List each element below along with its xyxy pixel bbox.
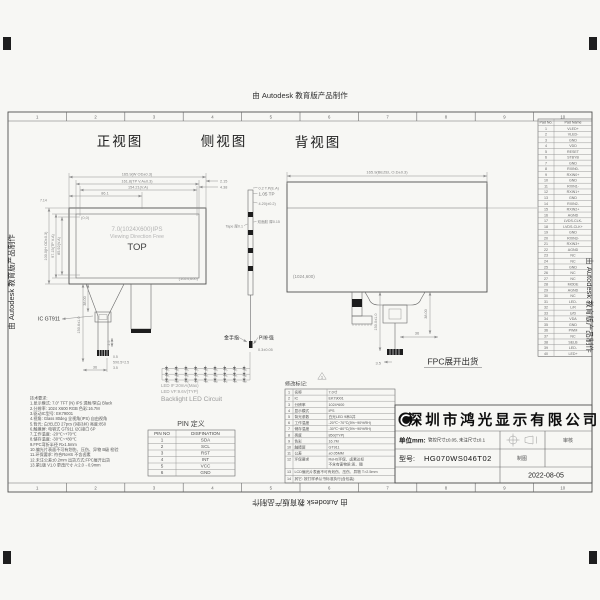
pad-name: RXIN1- — [567, 184, 580, 188]
pin-number: 3 — [161, 451, 164, 456]
spec-item: 名称 — [295, 390, 303, 395]
ruler-number: 7 — [386, 486, 389, 491]
note-line: 1.显示模式: 7.0" TFT (N) IPS 透射/常白 Black — [30, 400, 113, 406]
front-view-drawing — [45, 173, 218, 372]
pad-name: LED+ — [568, 352, 577, 356]
front-dim-va-height: 85.92(V.A) — [57, 236, 61, 255]
pin-number: 5 — [161, 464, 164, 469]
spec-row-number: 4 — [288, 409, 290, 413]
ruler-number: 3 — [153, 486, 156, 491]
ruler-number: 2 — [94, 114, 97, 119]
spec-item: 分辨率 — [295, 402, 306, 407]
led-vf-spec: LED VF:9.6V(TYP) — [161, 389, 199, 394]
pad-number: 17 — [544, 219, 548, 223]
pin-name: RST — [201, 451, 210, 456]
spec-row-number: 13 — [287, 470, 291, 474]
pad-number: 34 — [544, 317, 548, 321]
pad-name: VDD — [569, 144, 577, 148]
spec-item: IC — [295, 397, 299, 401]
pin-name: SCL — [201, 444, 210, 449]
spec-row-number: 8 — [288, 433, 290, 437]
side-tape-label: Tape 厚0.1 — [226, 224, 243, 229]
autodesk-watermark-left: 由 Autodesk 教育版产品制作 — [6, 234, 16, 330]
pad-number: 8 — [545, 167, 547, 171]
pad-table-header: Pad Name — [565, 121, 582, 125]
spec-value: 白光LED 9串3并 — [329, 414, 356, 419]
ruler-number: 5 — [270, 486, 273, 491]
note-line: 13.第1版 V1.0 更改尺寸 A:2.0→0.9mm — [30, 461, 101, 467]
pad-name: RXIN0+ — [567, 173, 580, 177]
pad-name: GND — [569, 138, 577, 142]
pad-number: 1 — [545, 127, 547, 131]
pad-name: VDA — [569, 317, 577, 321]
back-dim-fpc-length: 150.0±1.0 — [374, 314, 378, 331]
front-top-label: TOP — [127, 242, 146, 253]
pad-name: AGND — [568, 213, 579, 217]
front-dim-va-width: 154.21(V.A) — [128, 186, 149, 190]
spec-row-number: 2 — [288, 397, 290, 401]
note-line: 7.工作温度: -20℃~+70℃ — [30, 431, 77, 437]
note-line: 9.FPC弯折半径 R≥1.5mm — [30, 441, 77, 447]
pad-number: 3 — [545, 138, 547, 142]
note-line: 2.分辨率: 1024 X600 RGB 色彩:16.7M — [30, 405, 100, 411]
pad-number: 19 — [544, 231, 548, 235]
pad-number: 33 — [544, 311, 548, 315]
pad-number: 31 — [544, 300, 548, 304]
note-line: 5.背光: 白光LED 27pcs (9串3并) 亮度:850 — [30, 420, 107, 426]
ruler-number: 10 — [560, 486, 565, 491]
back-dim-fpc-width: 38.00 — [424, 309, 428, 319]
pad-name: NC — [570, 259, 576, 263]
pin-definition-table: PIN NODISFINATION1SDA2SCL3RST4INT5VCC6GN… — [148, 430, 235, 476]
spec-value: 850(TYP) — [329, 433, 345, 437]
front-dim-0-5: 0.5 — [113, 355, 118, 359]
front-dim-pitch: 5X0.5=2.5 — [113, 361, 129, 365]
spec-row-number: 14 — [287, 477, 291, 481]
pad-number: 28 — [544, 283, 548, 287]
pad-name: RXIN0- — [567, 167, 580, 171]
company-name: 深圳市鸿光显示有限公司 — [408, 411, 600, 429]
pin-name: INT — [202, 457, 210, 462]
pad-number: 6 — [545, 156, 547, 160]
side-dim-tp: 0.2 T.P(E.A) — [259, 187, 280, 191]
note-line: 4.视角: Glass 80deg 全视角(IPS) 自由视角 — [30, 415, 107, 421]
pad-number: 2 — [545, 133, 547, 137]
pad-table-header: Pad No. — [540, 121, 553, 125]
back-corner-coord: (1024,600) — [293, 274, 315, 279]
pad-number: 26 — [544, 271, 548, 275]
spec-row-number: 5 — [288, 415, 290, 419]
pad-name: GND — [569, 323, 577, 327]
pad-number: 27 — [544, 277, 548, 281]
spec-item: 背光参数 — [295, 414, 310, 419]
pad-number: 16 — [544, 213, 548, 217]
pad-name: RXIN2+ — [567, 208, 580, 212]
back-dim-od: 165.9(BEZEL O.D±0.3) — [366, 170, 408, 175]
side-view-drawing — [239, 188, 258, 349]
pad-number: 12 — [544, 190, 548, 194]
front-viewing-direction-label: Viewing Direction Free — [110, 234, 164, 240]
pad-name: RXIN2- — [567, 202, 580, 206]
pad-name: GND — [569, 179, 577, 183]
side-adhesive-label: 双面胶 厚0.15 — [258, 219, 280, 224]
pad-name: NC — [570, 277, 576, 281]
ruler-number: 8 — [445, 114, 448, 119]
side-view-title: 侧视图 — [201, 134, 248, 149]
pad-name: MODE — [568, 283, 579, 287]
back-dim-36: 36 — [415, 331, 420, 336]
pad-name: U/D — [570, 311, 577, 315]
spec-row-number: 1 — [288, 391, 290, 395]
pad-name: RXIN3- — [567, 236, 580, 240]
note-line: 技术要求: — [30, 395, 48, 401]
revision-number: 1 — [321, 376, 323, 380]
pad-number: 18 — [544, 225, 548, 229]
front-dim-2-5: 2.5 — [107, 341, 111, 346]
pad-number: 39 — [544, 346, 548, 350]
pad-name: LED- — [569, 300, 578, 304]
pin-number: 1 — [161, 438, 164, 443]
note-line: 3.驱动IC型号: EK79001 — [30, 410, 74, 416]
pin-table-header: PIN NO — [154, 431, 170, 436]
pad-name: LED- — [569, 346, 578, 350]
back-view-title: 背视图 — [295, 135, 342, 150]
spec-row-number: 7 — [288, 427, 290, 431]
pad-name: GND — [569, 196, 577, 200]
spec-value: RoHS环保、卤素达标 — [329, 457, 365, 462]
side-dim-total: 4.20(±0.2) — [259, 202, 277, 206]
front-dim-tp-va-width: 161.8(TP V.A±0.3) — [121, 180, 153, 184]
fpc-ship-note: FPC展开出货 — [427, 357, 479, 367]
spec-value: EK79001 — [329, 397, 344, 401]
pin-number: 2 — [161, 444, 164, 449]
ruler-number: 1 — [36, 114, 39, 119]
note-line: 10.偏光片表面不可有划伤、压伤、异物 B级 检验 — [30, 446, 118, 452]
pad-name: VLED+ — [567, 127, 579, 131]
ruler-number: 4 — [211, 114, 214, 119]
revision-mark-label: 修改标记: — [285, 380, 307, 388]
pad-number: 9 — [545, 173, 547, 177]
front-panel-size-label: 7.0(1024X600)IPS — [112, 226, 163, 233]
autodesk-watermark-top: 由 Autodesk 教育版产品制作 — [252, 90, 348, 100]
front-origin-coord: (0,0) — [81, 215, 90, 220]
note-line: 8.储存温度: -30℃~+80℃ — [30, 436, 77, 442]
pad-name: GND — [569, 265, 577, 269]
pad-number: 11 — [544, 184, 548, 188]
registration-mark — [589, 551, 597, 564]
spec-row-number: 10 — [287, 446, 291, 450]
front-dim-right2: 4.38 — [220, 186, 227, 190]
engineering-drawing-canvas: 1122334455667788991010 由 Autodesk 教育版产品制… — [0, 0, 600, 600]
pin-name: GND — [200, 470, 211, 475]
spec-value: LCD偏光片表面不可有划伤、压伤、异物 T>2.5mm — [295, 469, 378, 474]
spec-value: 不含有害物质:汞、镉 — [329, 462, 364, 467]
technical-notes: 技术要求:1.显示模式: 7.0" TFT (N) IPS 透射/常白 Blac… — [30, 395, 118, 468]
pad-number: 21 — [544, 242, 548, 246]
pad-number: 24 — [544, 259, 548, 263]
pad-name-table: Pad No.Pad Name1VLED+2VLED-3GND4VDD5RESE… — [538, 119, 592, 356]
autodesk-watermark-bottom: 由 Autodesk 教育版产品制作 — [252, 498, 348, 508]
spec-value: -30℃~80℃(5%~90%RH) — [329, 427, 372, 431]
front-dim-od-width: 165.9(W OD±0.3) — [122, 172, 153, 177]
spec-value: 1024*600 — [329, 403, 345, 407]
back-view-drawing — [287, 172, 537, 368]
front-dim-fpc-width: 38.00 — [83, 296, 87, 306]
pad-number: 35 — [544, 323, 548, 327]
spec-row-number: 9 — [288, 439, 290, 443]
pad-number: 37 — [544, 334, 548, 338]
note-line: 11.环保要求: 符合RoHS 不含卤素 — [30, 451, 91, 457]
side-dim-tip: 0.3±0.05 — [258, 348, 273, 352]
pin-name: SDA — [201, 438, 211, 443]
touch-ic-label: IC GT911 — [38, 317, 60, 323]
pad-name: NC — [570, 271, 576, 275]
backlight-led-circuit — [162, 352, 250, 383]
tolerance-note: 管控尺寸±0.05, 未注尺寸±0.1 — [428, 437, 486, 444]
pad-name: AGND — [568, 288, 579, 292]
spec-item: 色彩 — [295, 438, 303, 443]
led-if-spec: LED IF:20mA(Max) — [161, 383, 199, 388]
pin-table-title: PIN 定义 — [177, 419, 205, 428]
drawn-label: 制图 — [517, 455, 527, 462]
note-line: 6.触摸屏: 电容式 GT911 I2C接口 6P — [30, 425, 96, 431]
front-view-title: 正视图 — [97, 134, 144, 149]
pad-number: 36 — [544, 329, 548, 333]
gold-finger-label: 金手指 — [224, 335, 239, 342]
front-dim-od-height: 100.0(H OD±0.3) — [44, 231, 48, 261]
spec-item: 触摸屏 — [295, 445, 306, 450]
pad-number: 40 — [544, 352, 548, 356]
stiffener-label: PI补强 — [259, 335, 274, 342]
pad-name: LVDS-CLK+ — [563, 225, 582, 229]
registration-mark — [3, 551, 11, 564]
front-dim-tp-va-height: 97.15(TP V.A) — [51, 233, 55, 257]
pad-number: 7 — [545, 161, 547, 165]
pin-number: 4 — [161, 457, 164, 462]
pin-table-header: DISFINATION — [191, 431, 220, 436]
spec-row-number: 3 — [288, 403, 290, 407]
spec-item: 储存温度 — [295, 426, 310, 431]
ruler-number: 4 — [211, 486, 214, 491]
pad-number: 32 — [544, 306, 548, 310]
registration-mark — [3, 37, 11, 50]
pad-name: STBYB — [567, 156, 579, 160]
spec-value: IPS — [329, 409, 335, 413]
spec-row-number: 6 — [288, 421, 290, 425]
pad-name: LVDS-CLK- — [564, 219, 583, 223]
ruler-number: 3 — [153, 114, 156, 119]
spec-value: 7.0寸 — [329, 390, 338, 395]
spec-item: 公差 — [295, 451, 303, 456]
front-dim-3-5: 3.5 — [113, 366, 118, 370]
ruler-number: 10 — [560, 114, 565, 119]
note-line: 12.未注公差±0.2mm 出货方式:FPC展开出货 — [30, 456, 110, 462]
pad-number: 20 — [544, 236, 548, 240]
front-dim-fpc-offset: 86.1 — [101, 192, 108, 196]
ruler-number: 5 — [270, 114, 273, 119]
drawing-date: 2022-08-05 — [528, 473, 564, 480]
pad-number: 25 — [544, 265, 548, 269]
pad-number: 15 — [544, 208, 548, 212]
spec-item: 环保要求 — [295, 457, 310, 462]
pad-name: VLED- — [568, 133, 579, 137]
ruler-number: 6 — [328, 114, 331, 119]
pad-name: NC — [570, 294, 576, 298]
ruler-number: 8 — [445, 486, 448, 491]
check-label: 审核 — [563, 437, 573, 444]
front-dim-right1: 2.15 — [220, 180, 227, 184]
led-circuit-title: Backlight LED Circuit — [161, 396, 222, 403]
pad-number: 13 — [544, 196, 548, 200]
pad-name: RXIN3+ — [567, 242, 580, 246]
ruler-number: 1 — [36, 486, 39, 491]
pad-number: 5 — [545, 150, 547, 154]
registration-mark — [589, 37, 597, 50]
pad-number: 14 — [544, 202, 548, 206]
pad-number: 10 — [544, 179, 548, 183]
pad-name: GND — [569, 231, 577, 235]
ruler-number: 9 — [503, 114, 506, 119]
model-label: 型号: — [399, 454, 415, 463]
pad-name: RESET — [567, 150, 580, 154]
unit-label: 单位mm: — [399, 436, 426, 445]
pad-number: 29 — [544, 288, 548, 292]
spec-item: 亮度 — [295, 432, 303, 437]
pad-name: GND — [569, 161, 577, 165]
pad-number: 22 — [544, 248, 548, 252]
pad-name: RXIN1+ — [567, 190, 580, 194]
ruler-number: 2 — [94, 486, 97, 491]
pad-name: NC — [570, 334, 576, 338]
model-number: HG070WS046T02 — [424, 454, 492, 463]
spec-row-number: 12 — [287, 458, 291, 462]
spec-value: -20℃~70℃(5%~90%RH) — [329, 421, 372, 425]
side-dim-1-05: 1.05 TP — [259, 192, 275, 197]
spec-row-number: 11 — [287, 452, 291, 456]
spec-value: 其它: 按打样承认书标准执行(含包装) — [295, 476, 355, 481]
front-dim-36: 36 — [93, 366, 97, 370]
spec-item: 显示模式 — [295, 408, 310, 413]
pad-name: AGND — [568, 248, 579, 252]
ruler-number: 9 — [503, 486, 506, 491]
pin-name: VCC — [201, 464, 211, 469]
front-dim-corner-offset: 7.14 — [40, 199, 47, 203]
pad-number: 38 — [544, 340, 548, 344]
pad-name: L/R — [570, 306, 576, 310]
back-dim-3-5: 3.5 — [375, 361, 381, 366]
spec-value: 16.7M — [329, 439, 339, 443]
pad-number: 4 — [545, 144, 547, 148]
pad-name: PWM — [569, 329, 578, 333]
front-dim-fpc-length: 150.6±1.0 — [77, 317, 81, 334]
ruler-number: 7 — [386, 114, 389, 119]
pad-number: 23 — [544, 254, 548, 258]
pad-name: SELB — [568, 340, 578, 344]
pad-number: 30 — [544, 294, 548, 298]
spec-value: ±0.05MM — [329, 452, 344, 456]
spec-value: GT911 — [329, 446, 340, 450]
pad-name: NC — [570, 254, 576, 258]
spec-table: 1名称7.0寸2ICEK790013分辨率1024*6004显示模式IPS5背光… — [285, 389, 395, 483]
front-corner-coord: (1024,600) — [179, 276, 199, 281]
spec-item: 工作温度 — [295, 420, 310, 425]
ruler-number: 6 — [328, 486, 331, 491]
pin-number: 6 — [161, 470, 164, 475]
